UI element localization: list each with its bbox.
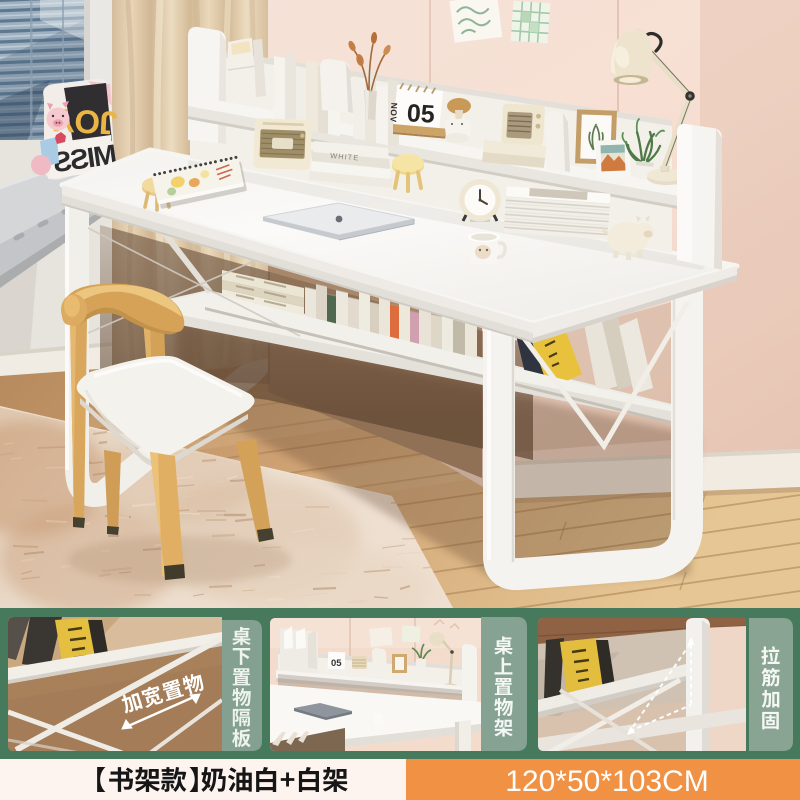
svg-text:NOV: NOV bbox=[388, 102, 399, 122]
svg-text:120*50*103CM: 120*50*103CM bbox=[505, 765, 708, 798]
svg-text:05: 05 bbox=[406, 99, 435, 128]
svg-text:05: 05 bbox=[331, 658, 342, 669]
